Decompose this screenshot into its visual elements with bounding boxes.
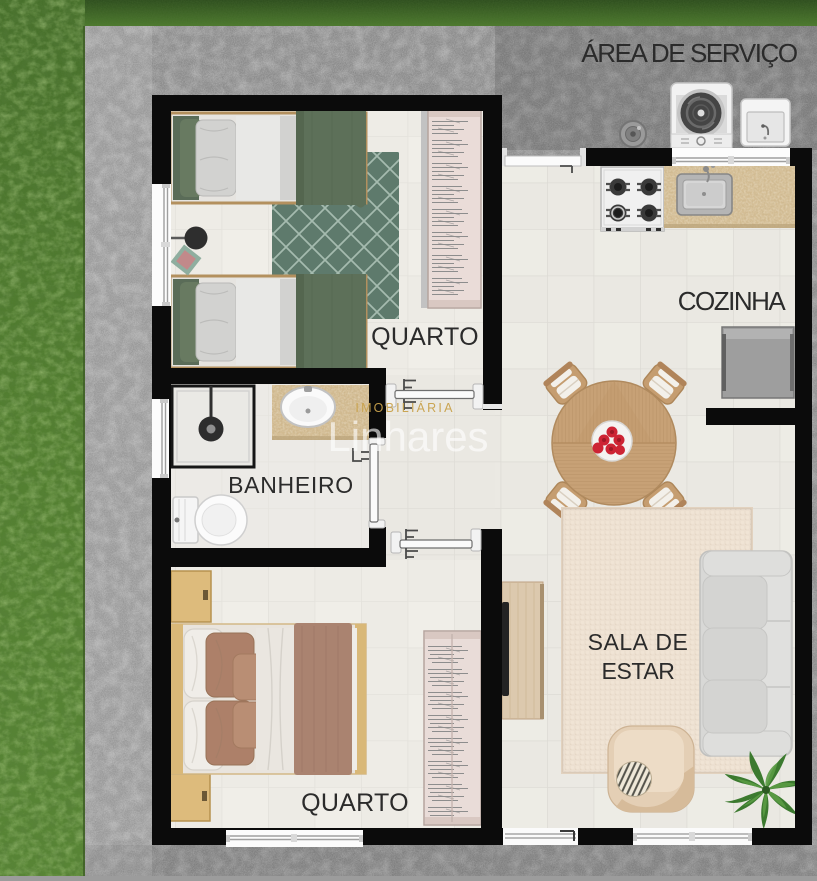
svg-text:BANHEIRO: BANHEIRO [228,472,354,498]
svg-text:ESTAR: ESTAR [602,658,675,684]
svg-text:SALA DE: SALA DE [588,629,689,655]
svg-text:COZINHA: COZINHA [678,286,787,316]
svg-text:QUARTO: QUARTO [371,323,479,351]
svg-text:ÁREA DE SERVIÇO: ÁREA DE SERVIÇO [581,38,797,68]
svg-text:Linhares: Linhares [327,413,488,460]
svg-text:QUARTO: QUARTO [301,789,409,817]
